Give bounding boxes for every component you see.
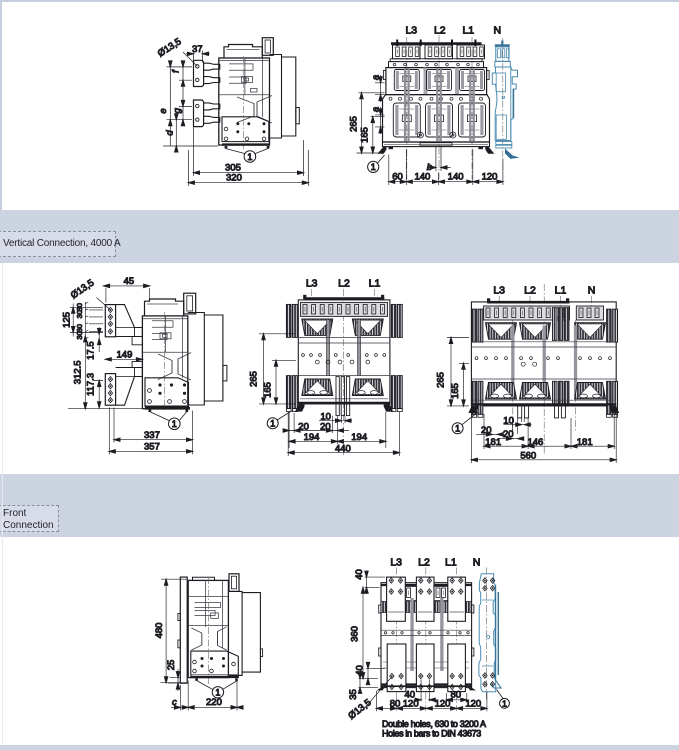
svg-text:40: 40 bbox=[354, 569, 365, 580]
svg-text:117.3: 117.3 bbox=[86, 373, 97, 396]
svg-text:165: 165 bbox=[450, 383, 461, 399]
svg-text:35: 35 bbox=[348, 689, 359, 700]
svg-text:Double holes, 630 to 3200 A: Double holes, 630 to 3200 A bbox=[382, 719, 486, 729]
svg-text:1: 1 bbox=[502, 698, 507, 708]
svg-text:312.5: 312.5 bbox=[73, 360, 84, 384]
svg-text:e: e bbox=[158, 108, 169, 113]
svg-text:a: a bbox=[370, 107, 381, 112]
svg-text:L3: L3 bbox=[493, 285, 505, 297]
svg-text:165: 165 bbox=[262, 382, 273, 398]
svg-text:80: 80 bbox=[451, 689, 462, 700]
svg-text:L1: L1 bbox=[445, 556, 457, 568]
svg-text:Ø13,5: Ø13,5 bbox=[156, 36, 184, 59]
svg-text:120: 120 bbox=[435, 698, 451, 709]
svg-text:f: f bbox=[171, 69, 182, 73]
svg-text:c: c bbox=[172, 697, 177, 708]
svg-text:20: 20 bbox=[481, 425, 492, 436]
svg-text:45: 45 bbox=[124, 276, 135, 287]
svg-text:L2: L2 bbox=[434, 25, 446, 37]
svg-text:1: 1 bbox=[270, 419, 275, 429]
svg-text:265: 265 bbox=[249, 371, 260, 387]
svg-text:120: 120 bbox=[403, 698, 419, 709]
svg-text:g: g bbox=[172, 107, 183, 113]
svg-text:25: 25 bbox=[166, 660, 177, 671]
svg-text:149: 149 bbox=[117, 349, 133, 360]
svg-text:1: 1 bbox=[247, 152, 252, 162]
svg-text:17.5: 17.5 bbox=[86, 341, 97, 360]
svg-text:440: 440 bbox=[335, 443, 351, 454]
svg-text:1: 1 bbox=[172, 419, 177, 429]
svg-text:220: 220 bbox=[206, 697, 222, 708]
svg-text:337: 337 bbox=[144, 430, 160, 441]
svg-text:120: 120 bbox=[465, 698, 481, 709]
svg-text:L3: L3 bbox=[405, 25, 417, 37]
svg-text:80: 80 bbox=[390, 698, 401, 709]
svg-text:Ø13,5: Ø13,5 bbox=[69, 278, 97, 302]
svg-text:125: 125 bbox=[61, 312, 72, 328]
svg-text:265: 265 bbox=[349, 116, 360, 132]
svg-text:357: 357 bbox=[144, 442, 160, 453]
svg-text:194: 194 bbox=[351, 432, 367, 443]
svg-text:140: 140 bbox=[414, 172, 430, 183]
svg-text:320: 320 bbox=[226, 173, 242, 184]
svg-text:L1: L1 bbox=[555, 285, 567, 297]
svg-text:Holes in bars to DIN 43673: Holes in bars to DIN 43673 bbox=[382, 729, 481, 739]
svg-text:165: 165 bbox=[360, 127, 371, 143]
svg-text:20: 20 bbox=[503, 429, 514, 440]
svg-text:N: N bbox=[588, 285, 596, 297]
svg-text:60: 60 bbox=[392, 172, 403, 183]
svg-text:1: 1 bbox=[371, 162, 376, 172]
svg-text:1: 1 bbox=[215, 688, 220, 698]
svg-text:181: 181 bbox=[577, 437, 593, 448]
svg-text:146: 146 bbox=[527, 437, 543, 448]
svg-text:N: N bbox=[494, 25, 502, 37]
svg-text:L1: L1 bbox=[462, 25, 474, 37]
svg-text:d: d bbox=[165, 130, 176, 136]
svg-text:L2: L2 bbox=[338, 278, 350, 290]
svg-text:10: 10 bbox=[503, 415, 514, 426]
svg-text:a: a bbox=[370, 75, 381, 80]
svg-text:L1: L1 bbox=[369, 278, 381, 290]
svg-text:30: 30 bbox=[75, 324, 84, 332]
svg-text:181: 181 bbox=[485, 437, 501, 448]
svg-text:140: 140 bbox=[448, 172, 464, 183]
svg-text:N: N bbox=[473, 556, 481, 568]
svg-text:120: 120 bbox=[482, 172, 498, 183]
svg-text:1: 1 bbox=[455, 424, 460, 434]
svg-text:360: 360 bbox=[350, 626, 361, 642]
svg-text:30: 30 bbox=[75, 331, 84, 339]
svg-text:20: 20 bbox=[298, 421, 309, 432]
svg-text:480: 480 bbox=[154, 623, 165, 639]
svg-text:194: 194 bbox=[304, 432, 320, 443]
svg-text:L3: L3 bbox=[306, 278, 318, 290]
svg-text:L2: L2 bbox=[418, 556, 430, 568]
svg-text:L2: L2 bbox=[524, 285, 536, 297]
svg-text:30: 30 bbox=[75, 310, 84, 318]
svg-text:L3: L3 bbox=[390, 556, 402, 568]
svg-text:265: 265 bbox=[436, 372, 447, 388]
svg-text:37: 37 bbox=[192, 44, 203, 55]
svg-text:Ø13,5: Ø13,5 bbox=[346, 697, 373, 722]
svg-text:20: 20 bbox=[320, 421, 331, 432]
svg-text:560: 560 bbox=[520, 450, 536, 461]
